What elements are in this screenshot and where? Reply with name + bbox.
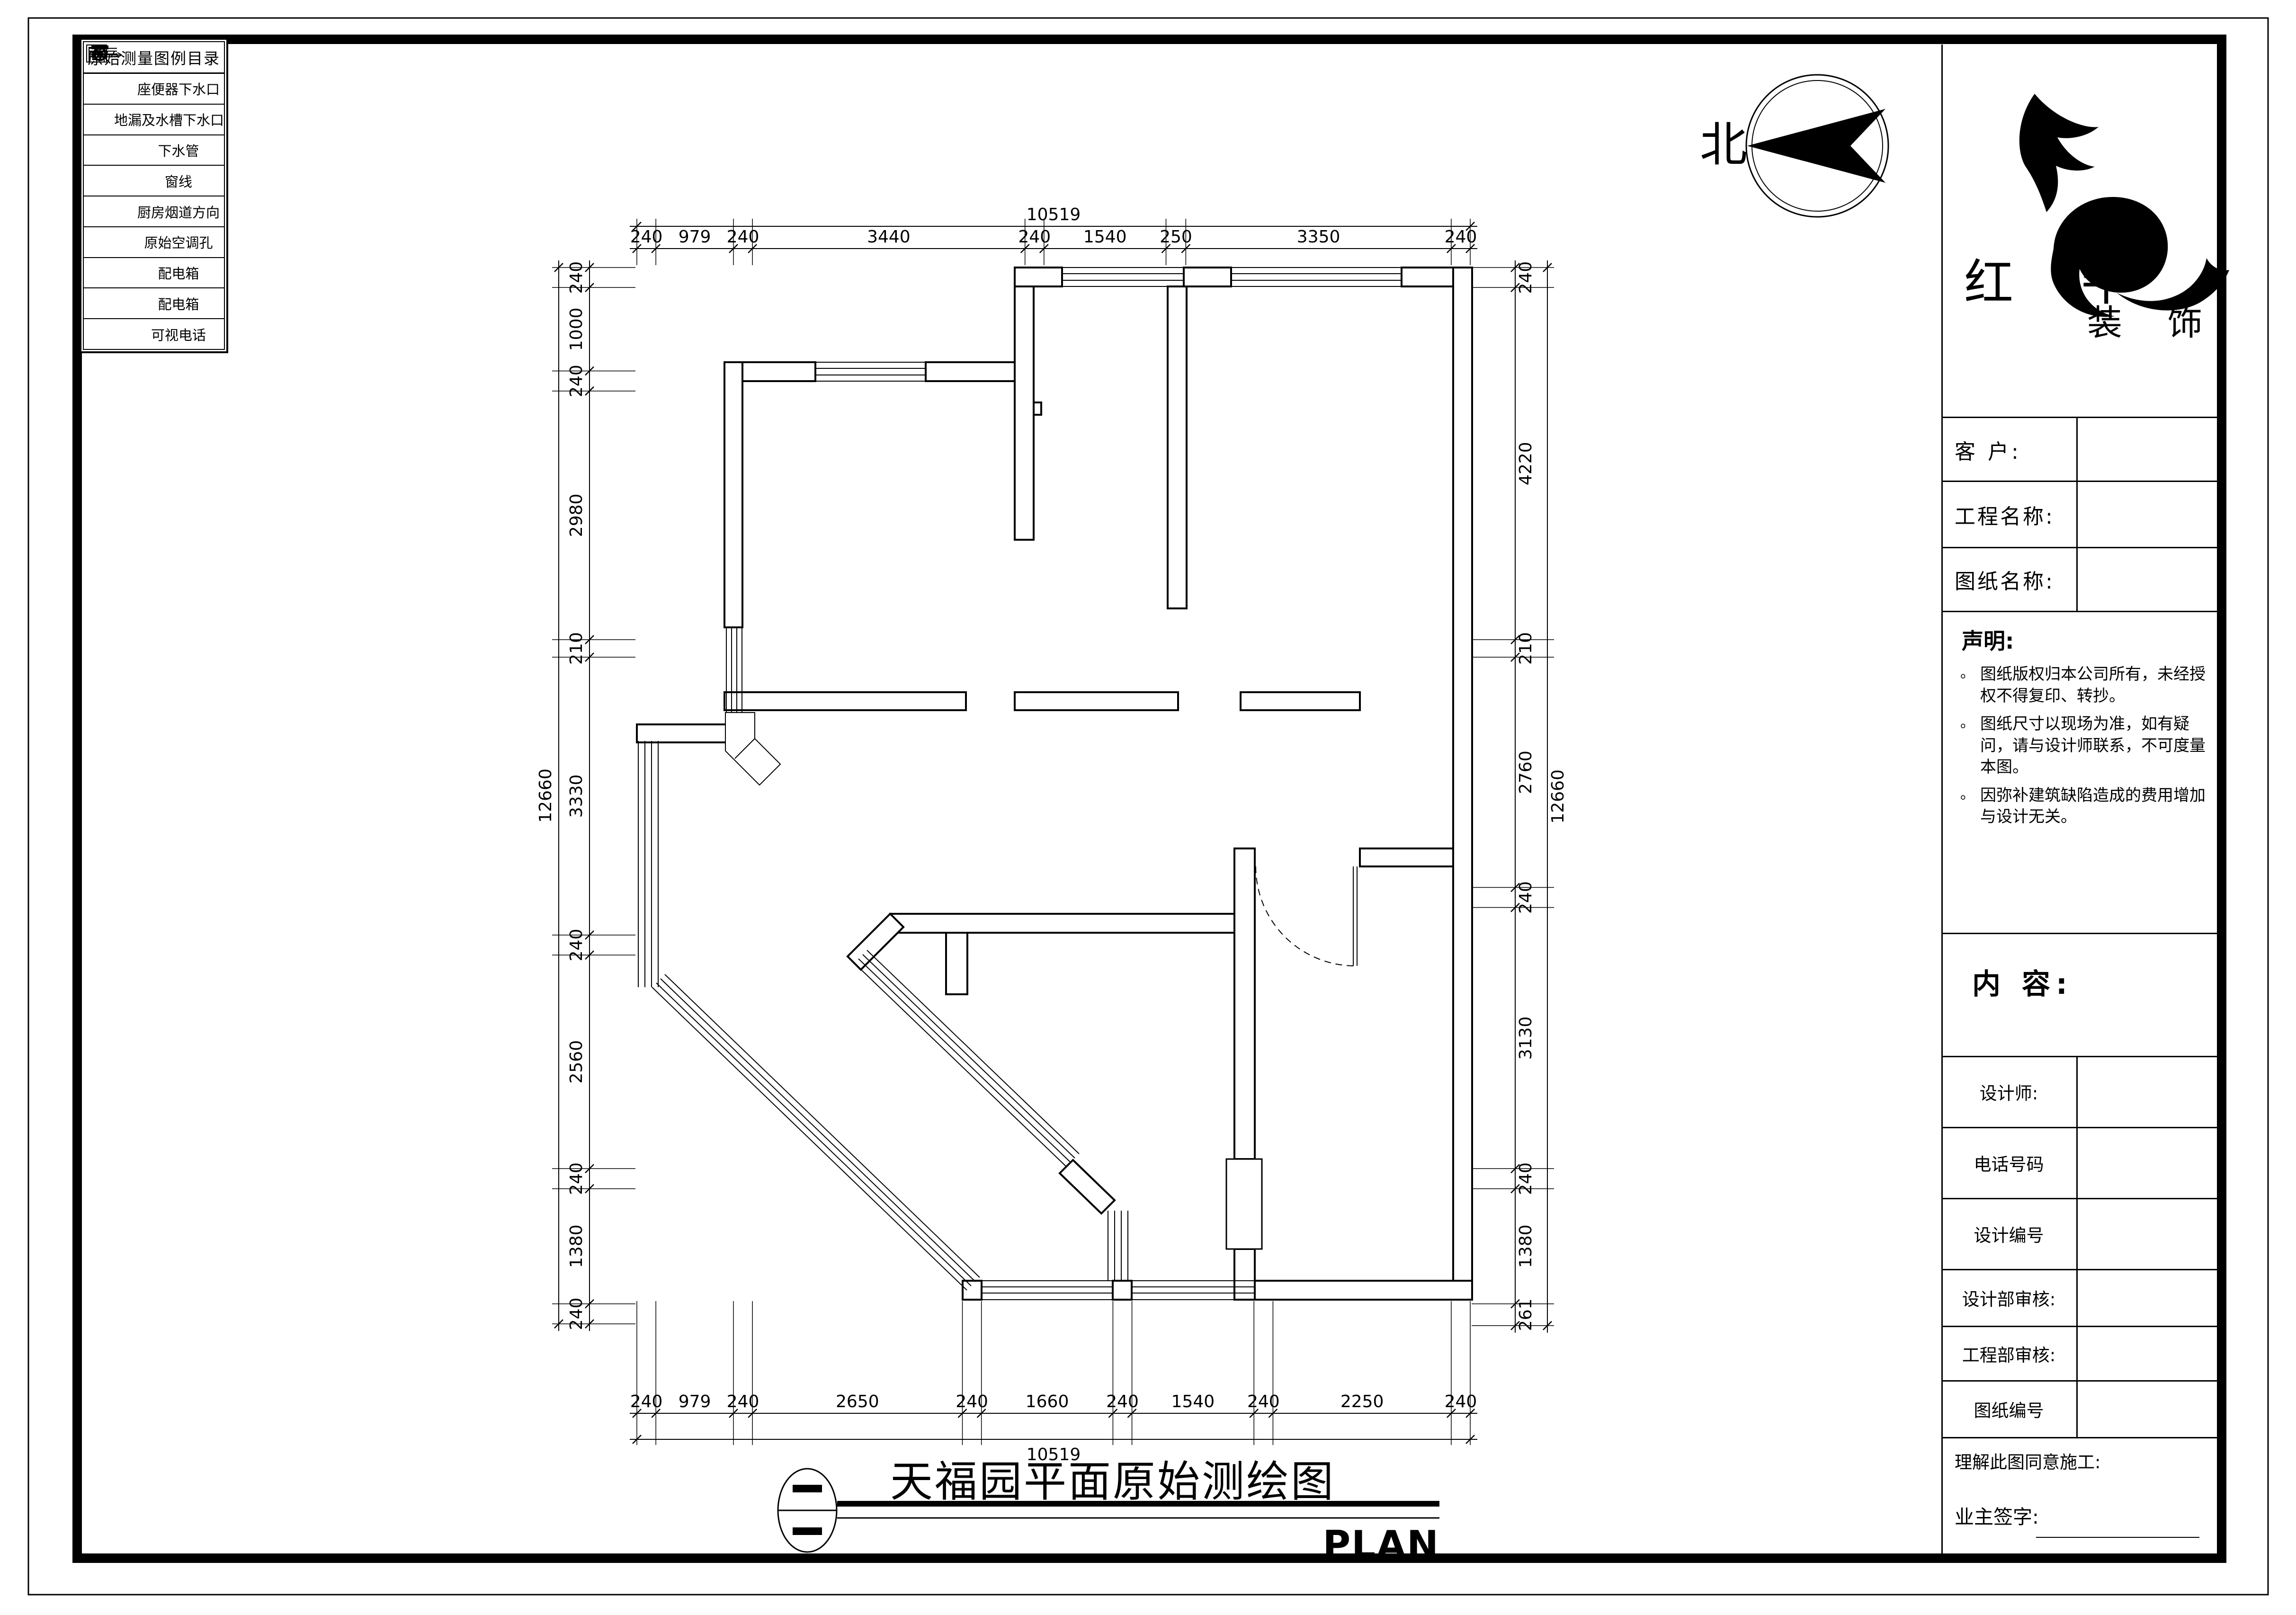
panel-divider <box>1941 1437 2222 1438</box>
statement-text: 图纸版权归本公司所有，未经授权不得复印、转抄。 <box>1980 664 2214 707</box>
legend-item-label: 座便器下水口 <box>133 79 224 98</box>
statement-title: 声明: <box>1962 624 2014 655</box>
svg-text:979: 979 <box>679 1392 711 1411</box>
statement-text: 图纸尺寸以现场为准，如有疑问，请与设计师联系，不可度量本图。 <box>1980 714 2214 778</box>
legend-item-label: 原始空调孔 <box>133 232 224 252</box>
svg-text:240: 240 <box>1516 881 1536 914</box>
drawing-sheet: 北 24097924034402401540250335024010519240… <box>0 0 2296 1615</box>
north-compass: 北 <box>1700 75 1888 217</box>
panel-divider <box>1941 481 2222 482</box>
drawing-title: 天福园平面原始测绘图 <box>890 1447 1335 1508</box>
drawing-name-field-label: 图纸名称: <box>1955 564 2055 595</box>
bullet-mark: 。 <box>1960 714 1980 778</box>
svg-text:979: 979 <box>679 227 711 247</box>
svg-text:210: 210 <box>567 632 586 665</box>
plan-label: PLAN <box>1312 1523 1439 1567</box>
svg-text:240: 240 <box>567 261 586 294</box>
panel-column-divider <box>2076 1056 2078 1437</box>
project-name-field-label: 工程名称: <box>1955 500 2055 530</box>
legend-item-label: 地漏及水槽下水口 <box>114 109 224 129</box>
legend-item-label: 厨房烟道方向 <box>133 202 224 222</box>
legend-item-label: 配电箱 <box>133 263 224 283</box>
info-row-label: 工程部审核: <box>1941 1341 2076 1366</box>
north-arrow-icon <box>1747 109 1885 183</box>
legend-row: 可可视电话 <box>84 319 224 349</box>
statement-item: 。图纸版权归本公司所有，未经授权不得复印、转抄。 <box>1960 664 2214 707</box>
svg-text:261: 261 <box>1516 1298 1536 1331</box>
info-row-label: 电话号码 <box>1941 1150 2076 1176</box>
svg-text:3330: 3330 <box>567 775 586 818</box>
svg-text:210: 210 <box>1516 632 1536 665</box>
svg-text:1540: 1540 <box>1171 1392 1215 1411</box>
svg-text:250: 250 <box>1160 227 1192 247</box>
panel-column-divider <box>2076 417 2078 611</box>
floor-plan-walls <box>637 268 1472 1300</box>
legend-inner: 原始测量图例目录 座便器下水口地漏及水槽下水口下水管窗线厨房烟道方向K原始空调孔… <box>83 41 225 350</box>
svg-text:3440: 3440 <box>867 227 911 247</box>
svg-text:1660: 1660 <box>1026 1392 1069 1411</box>
svg-text:240: 240 <box>567 1298 586 1330</box>
svg-text:4220: 4220 <box>1516 442 1536 485</box>
outer-border <box>28 18 2268 1595</box>
svg-text:240: 240 <box>567 1162 586 1195</box>
svg-text:1000: 1000 <box>567 308 586 351</box>
legend-item-label: 窗线 <box>133 171 224 191</box>
svg-text:1380: 1380 <box>567 1224 586 1268</box>
panel-divider <box>1941 1269 2222 1270</box>
panel-divider <box>1941 933 2222 934</box>
statement-item: 。图纸尺寸以现场为准，如有疑问，请与设计师联系，不可度量本图。 <box>1960 714 2214 778</box>
bullet-mark: 。 <box>1960 785 1980 828</box>
info-row-label: 设计部审核: <box>1941 1285 2076 1311</box>
legend-row: 地漏及水槽下水口 <box>84 105 224 135</box>
brand-name-line2: 装 饰 <box>2087 294 2220 345</box>
svg-text:240: 240 <box>727 1392 759 1411</box>
legend-box: 原始测量图例目录 座便器下水口地漏及水槽下水口下水管窗线厨房烟道方向K原始空调孔… <box>80 38 228 353</box>
svg-text:240: 240 <box>1018 227 1051 247</box>
svg-text:240: 240 <box>1516 261 1536 294</box>
signature-line <box>2036 1537 2199 1538</box>
panel-divider <box>1941 1127 2222 1128</box>
svg-text:240: 240 <box>630 227 663 247</box>
svg-text:240: 240 <box>630 1392 663 1411</box>
legend-item-label: 下水管 <box>133 140 224 160</box>
panel-divider <box>1941 1380 2222 1382</box>
panel-divider <box>1941 547 2222 548</box>
svg-text:3130: 3130 <box>1516 1017 1536 1060</box>
svg-text:1380: 1380 <box>1516 1224 1536 1268</box>
panel-divider <box>1941 1326 2222 1327</box>
svg-text:240: 240 <box>1445 227 1477 247</box>
svg-text:240: 240 <box>956 1392 988 1411</box>
svg-text:2650: 2650 <box>836 1392 879 1411</box>
info-row-label: 设计编号 <box>1941 1221 2076 1247</box>
svg-text:240: 240 <box>1445 1392 1477 1411</box>
legend-rows: 座便器下水口地漏及水槽下水口下水管窗线厨房烟道方向K原始空调孔配配电箱弱配电箱可… <box>84 74 224 349</box>
svg-text:240: 240 <box>567 929 586 962</box>
legend-row: K原始空调孔 <box>84 227 224 258</box>
svg-text:2560: 2560 <box>567 1040 586 1084</box>
legend-row: 弱配电箱 <box>84 288 224 319</box>
dimension-chains: 2409792403440240154025033502401051924097… <box>536 205 1568 1464</box>
svg-text:10519: 10519 <box>1027 205 1081 224</box>
statement-text: 因弥补建筑缺陷造成的费用增加与设计无关。 <box>1980 785 2214 828</box>
video-phone-icon: 可 <box>84 42 127 66</box>
bullet-mark: 。 <box>1960 664 1980 707</box>
customer-field-label: 客 户: <box>1955 435 2021 465</box>
svg-text:可: 可 <box>97 50 103 58</box>
svg-text:12660: 12660 <box>1548 769 1568 824</box>
content-label: 内 容: <box>1972 961 2073 1002</box>
sheet-borders <box>28 18 2268 1595</box>
svg-text:2980: 2980 <box>567 494 586 537</box>
info-row-label: 设计师: <box>1941 1079 2076 1105</box>
agreement-label: 理解此图同意施工: <box>1955 1448 2100 1473</box>
owner-sign-label: 业主签字: <box>1955 1501 2039 1529</box>
svg-text:240: 240 <box>727 227 759 247</box>
entry-door-swing-arc <box>1256 866 1355 966</box>
info-row-label: 图纸编号 <box>1941 1396 2076 1422</box>
panel-divider <box>1941 417 2222 418</box>
svg-text:1540: 1540 <box>1083 227 1127 247</box>
svg-text:240: 240 <box>1516 1162 1536 1195</box>
legend-row: 下水管 <box>84 135 224 166</box>
svg-text:2760: 2760 <box>1516 750 1536 794</box>
kitchen-flue-symbol <box>725 713 780 785</box>
legend-row: 厨房烟道方向 <box>84 196 224 227</box>
bedroom-door-leaf <box>1226 1159 1262 1249</box>
legend-row: 座便器下水口 <box>84 74 224 105</box>
legend-row: 窗线 <box>84 166 224 196</box>
statement-list: 。图纸版权归本公司所有，未经授权不得复印、转抄。。图纸尺寸以现场为准，如有疑问，… <box>1960 664 2214 835</box>
svg-text:240: 240 <box>1247 1392 1280 1411</box>
svg-text:3350: 3350 <box>1297 227 1340 247</box>
svg-text:12660: 12660 <box>536 768 555 823</box>
panel-divider <box>1941 1198 2222 1199</box>
legend-row: 配配电箱 <box>84 258 224 289</box>
legend-item-label: 配电箱 <box>133 294 224 313</box>
statement-item: 。因弥补建筑缺陷造成的费用增加与设计无关。 <box>1960 785 2214 828</box>
panel-divider <box>1941 1056 2222 1057</box>
svg-text:240: 240 <box>567 365 586 397</box>
svg-text:2250: 2250 <box>1340 1392 1384 1411</box>
panel-divider <box>1941 611 2222 612</box>
north-label: 北 <box>1700 117 1747 172</box>
svg-text:240: 240 <box>1106 1392 1139 1411</box>
legend-item-label: 可视电话 <box>133 324 224 344</box>
